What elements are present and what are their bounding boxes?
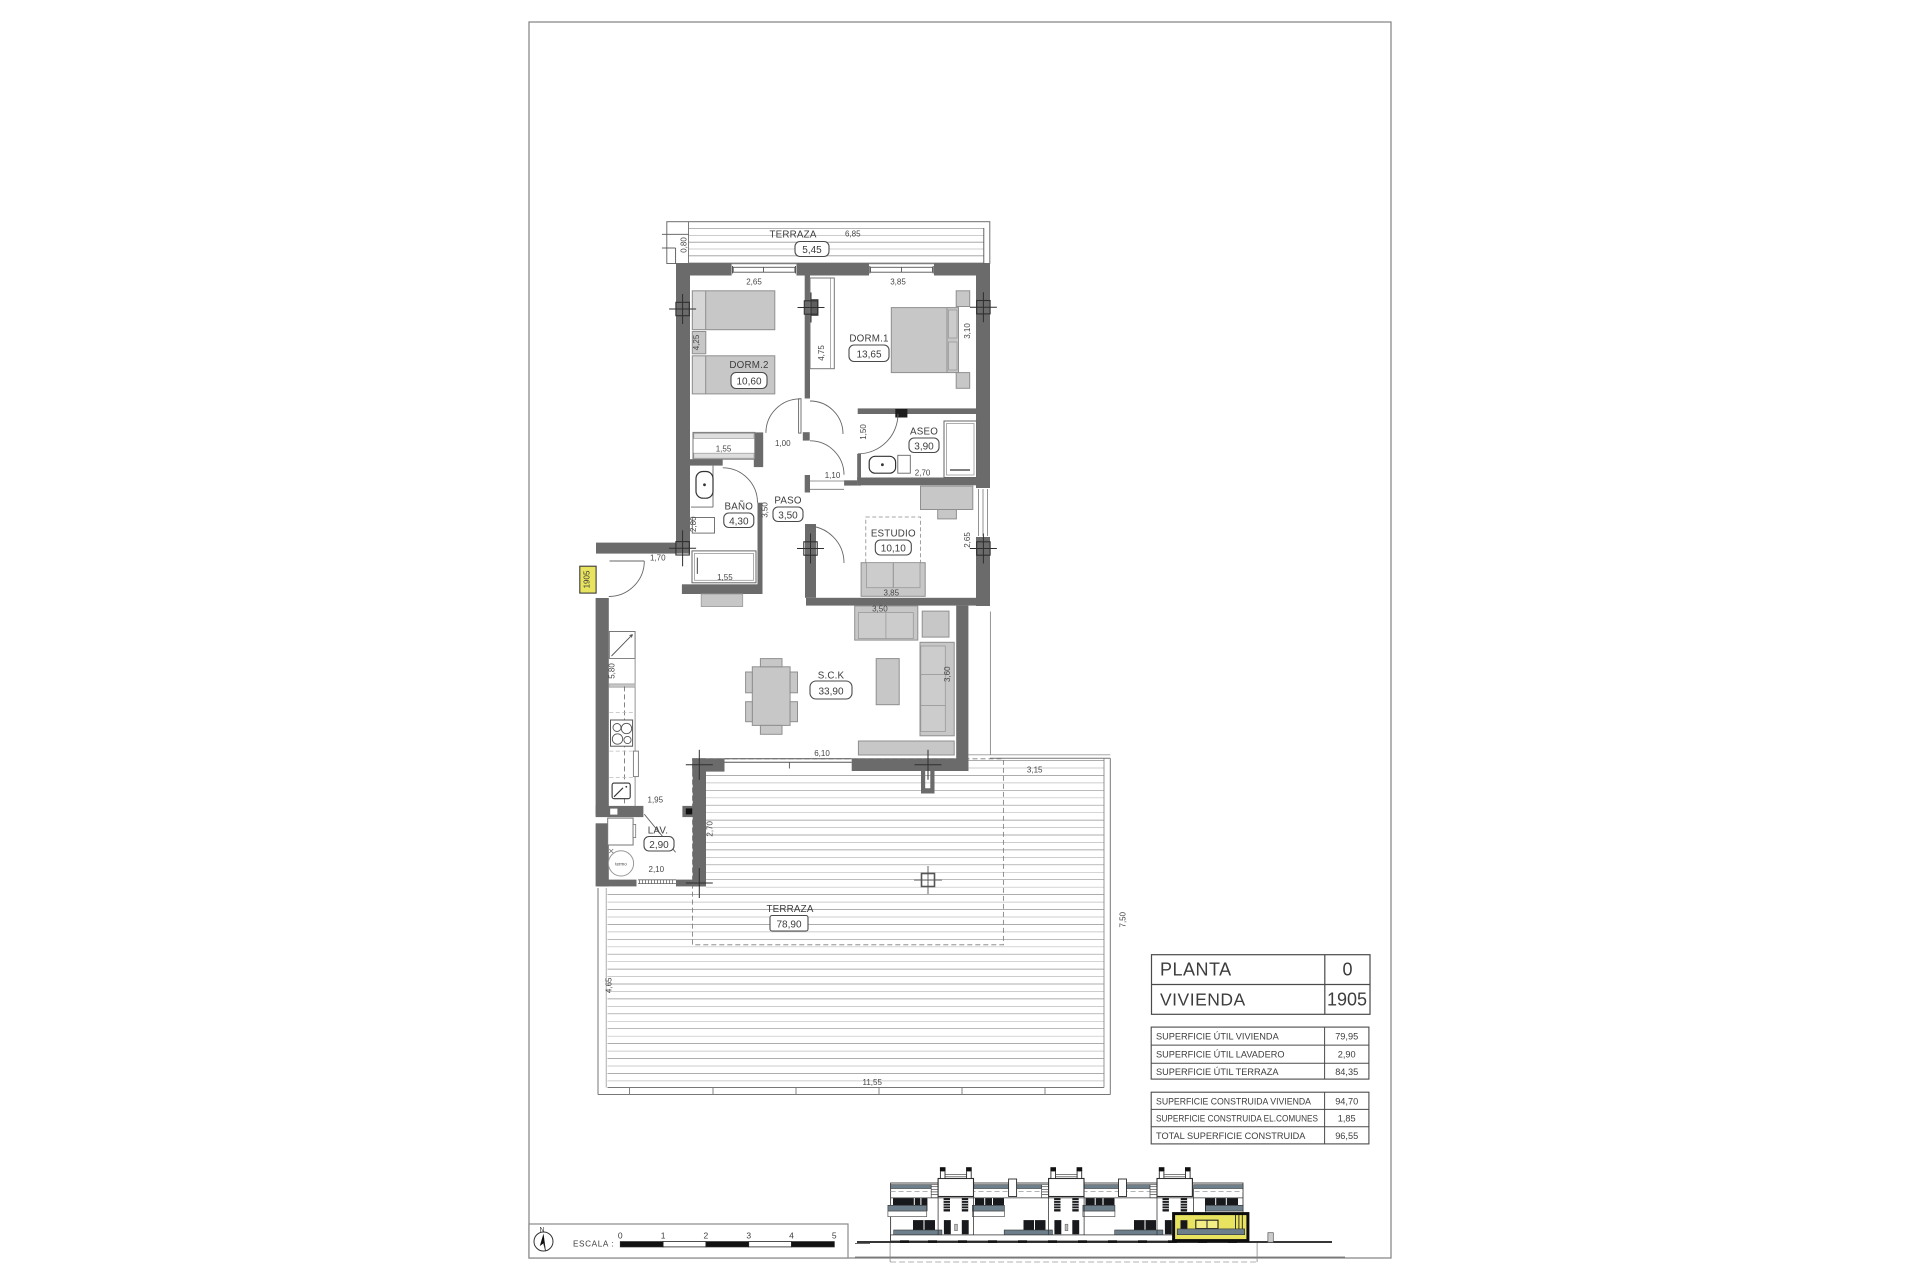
svg-text:10,10: 10,10 (881, 544, 906, 555)
svg-text:5,80: 5,80 (608, 663, 617, 679)
svg-text:TERRAZA: TERRAZA (766, 904, 813, 915)
svg-text:1,00: 1,00 (775, 439, 791, 448)
svg-text:4,65: 4,65 (605, 977, 614, 993)
svg-text:4,25: 4,25 (692, 334, 701, 350)
svg-text:3,50: 3,50 (778, 511, 798, 522)
svg-text:DORM.1: DORM.1 (849, 334, 888, 345)
svg-text:S.C.K: S.C.K (818, 671, 845, 682)
svg-text:1,70: 1,70 (650, 554, 666, 563)
svg-text:2: 2 (704, 1231, 709, 1241)
svg-text:1,55: 1,55 (717, 573, 733, 582)
svg-text:VIVIENDA: VIVIENDA (1160, 990, 1246, 1010)
svg-text:1,50: 1,50 (859, 424, 868, 440)
svg-text:SUPERFICIE ÚTIL VIVIENDA: SUPERFICIE ÚTIL VIVIENDA (1156, 1032, 1280, 1042)
svg-text:SUPERFICIE CONSTRUIDA EL.COMUN: SUPERFICIE CONSTRUIDA EL.COMUNES (1156, 1114, 1318, 1124)
svg-text:PLANTA: PLANTA (1160, 960, 1232, 980)
svg-text:3: 3 (746, 1231, 751, 1241)
svg-text:1: 1 (661, 1231, 666, 1241)
svg-text:0: 0 (1342, 960, 1352, 980)
svg-text:4,75: 4,75 (817, 345, 826, 361)
svg-text:2,65: 2,65 (746, 278, 762, 287)
svg-text:ASEO: ASEO (910, 427, 938, 438)
svg-text:4: 4 (789, 1231, 794, 1241)
svg-text:3,15: 3,15 (1027, 766, 1043, 775)
svg-text:2,65: 2,65 (963, 532, 972, 548)
svg-text:N: N (540, 1227, 545, 1234)
svg-text:3,85: 3,85 (884, 589, 900, 598)
svg-text:7,50: 7,50 (1119, 911, 1128, 927)
svg-text:3,85: 3,85 (890, 278, 906, 287)
svg-text:13,65: 13,65 (856, 350, 881, 361)
svg-text:11,55: 11,55 (862, 1078, 882, 1087)
svg-text:2,90: 2,90 (1338, 1050, 1356, 1060)
svg-text:94,70: 94,70 (1335, 1096, 1358, 1106)
svg-text:6,10: 6,10 (814, 749, 830, 758)
svg-text:84,35: 84,35 (1335, 1067, 1358, 1077)
svg-text:5,45: 5,45 (802, 245, 822, 256)
svg-text:3,10: 3,10 (963, 323, 972, 339)
svg-text:2,70: 2,70 (706, 820, 715, 836)
svg-text:1905: 1905 (583, 570, 592, 588)
svg-text:SUPERFICIE ÚTIL TERRAZA: SUPERFICIE ÚTIL TERRAZA (1156, 1067, 1279, 1077)
svg-text:1,85: 1,85 (1338, 1114, 1356, 1124)
svg-text:PASO: PASO (774, 496, 801, 507)
svg-text:0,80: 0,80 (680, 237, 689, 253)
svg-text:TOTAL SUPERFICIE CONSTRUIDA: TOTAL SUPERFICIE CONSTRUIDA (1156, 1131, 1306, 1141)
svg-text:4,30: 4,30 (729, 517, 749, 528)
svg-text:78,90: 78,90 (776, 920, 801, 931)
svg-text:SUPERFICIE CONSTRUIDA VIVIENDA: SUPERFICIE CONSTRUIDA VIVIENDA (1156, 1096, 1312, 1106)
svg-text:2,70: 2,70 (915, 469, 931, 478)
svg-text:1905: 1905 (1327, 990, 1367, 1010)
svg-text:0: 0 (618, 1231, 623, 1241)
svg-text:2,10: 2,10 (649, 865, 665, 874)
svg-text:1,10: 1,10 (825, 471, 841, 480)
svg-text:3,50: 3,50 (872, 605, 888, 614)
svg-text:1,95: 1,95 (648, 796, 664, 805)
svg-text:79,95: 79,95 (1335, 1032, 1358, 1042)
svg-text:6,85: 6,85 (845, 230, 861, 239)
svg-text:1,55: 1,55 (716, 445, 732, 454)
svg-text:3,50: 3,50 (760, 502, 769, 518)
svg-text:2,80: 2,80 (689, 516, 698, 532)
svg-text:3,90: 3,90 (914, 442, 934, 453)
svg-text:96,55: 96,55 (1335, 1131, 1358, 1141)
svg-text:DORM.2: DORM.2 (729, 360, 768, 371)
svg-text:5: 5 (832, 1231, 837, 1241)
svg-text:ESCALA :: ESCALA : (573, 1240, 614, 1249)
svg-text:2,90: 2,90 (649, 840, 669, 851)
svg-text:TERRAZA: TERRAZA (769, 230, 816, 241)
svg-text:BAÑO: BAÑO (725, 502, 754, 513)
svg-text:33,90: 33,90 (818, 687, 843, 698)
svg-text:10,60: 10,60 (736, 377, 761, 388)
svg-text:termo: termo (615, 862, 627, 867)
svg-text:LAV.: LAV. (648, 826, 668, 837)
svg-text:SUPERFICIE ÚTIL LAVADERO: SUPERFICIE ÚTIL LAVADERO (1156, 1050, 1284, 1060)
svg-text:3,60: 3,60 (943, 666, 952, 682)
svg-text:ESTUDIO: ESTUDIO (871, 529, 916, 540)
